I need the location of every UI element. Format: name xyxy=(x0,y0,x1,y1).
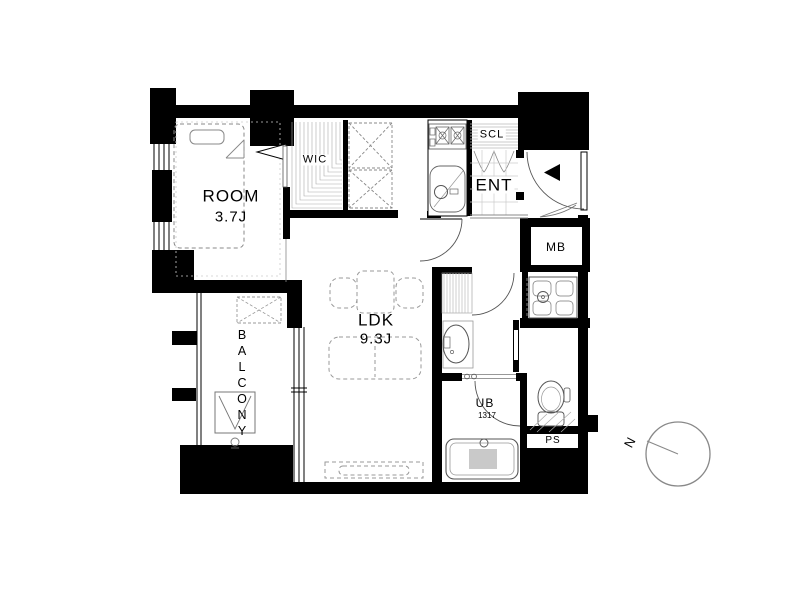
ps-label: PS xyxy=(545,436,560,446)
pillar-top-right xyxy=(518,92,589,150)
room-label: ROOM xyxy=(203,188,260,205)
basin-faucet xyxy=(444,337,450,348)
washbasin xyxy=(443,325,469,363)
washer-pan xyxy=(527,277,577,318)
dining-table xyxy=(357,271,394,313)
toilet-room xyxy=(530,381,575,432)
north-compass xyxy=(646,422,710,486)
wic-door xyxy=(257,144,287,282)
hall-strip-hatch xyxy=(444,273,468,313)
washer-pan-outline xyxy=(529,277,577,318)
ac-unit-x xyxy=(237,297,281,323)
balcony-label: BALCONY xyxy=(235,328,249,440)
basin-drain xyxy=(450,350,453,353)
wall-kitchen-east xyxy=(467,120,472,216)
pillar-top-middle xyxy=(250,90,294,146)
wall-wic-closet-south xyxy=(286,210,398,218)
door-jamb-bottom xyxy=(516,192,524,200)
ent-label: ENT xyxy=(474,177,515,194)
ub-size-label: 1317 xyxy=(478,412,496,420)
bathroom xyxy=(446,439,518,479)
toilet-control xyxy=(564,388,570,402)
bathtub-texture xyxy=(469,449,497,469)
wall-right-bump xyxy=(586,415,598,432)
balcony-railing xyxy=(197,293,201,447)
kitchen xyxy=(428,120,467,216)
wic-door-wedge xyxy=(257,144,286,160)
closet-x-upper xyxy=(349,123,392,168)
room-west-window-upper xyxy=(154,144,169,170)
ldk-balcony-window xyxy=(294,327,304,482)
toilet-bowl-inner xyxy=(542,387,561,411)
closet-x-lower xyxy=(349,170,392,208)
scl-label: SCL xyxy=(478,130,506,141)
bed-fold-corner xyxy=(226,140,244,158)
floor-plan-page: ROOM 3.7J WIC SCL ENT MB LDK 9.3J BALCON… xyxy=(0,0,800,600)
ent-step-edge xyxy=(470,215,528,218)
entrance-door-arc xyxy=(527,152,584,209)
wall-balcony-stub-2 xyxy=(172,388,196,401)
door-jamb-top xyxy=(516,150,524,158)
wall-room-south xyxy=(152,280,302,293)
floor-plan-drawing xyxy=(0,0,800,600)
entrance-direction-icon xyxy=(544,164,560,181)
washroom-door-arc xyxy=(472,273,514,315)
dining-chair-left xyxy=(330,278,357,308)
wic-door-panel xyxy=(283,146,287,187)
tv-board xyxy=(325,462,423,478)
entrance-door-leaf xyxy=(581,152,587,210)
ldk-door-arc xyxy=(420,219,462,261)
room-size-label: 3.7J xyxy=(215,210,247,225)
compass-needle xyxy=(647,441,678,454)
wall-balcony-stub-1 xyxy=(172,331,197,345)
dining-chair-right xyxy=(396,278,423,308)
toilet-door-opening xyxy=(514,330,518,360)
wall-wic-closet-divider xyxy=(343,120,348,210)
storage-closet xyxy=(349,123,392,208)
mb-door-swing xyxy=(540,203,577,217)
washroom xyxy=(443,321,473,368)
hall-strip xyxy=(442,273,472,313)
wall-left-mid xyxy=(152,170,172,222)
wic-label: WIC xyxy=(301,155,329,166)
ldk-furniture xyxy=(325,271,423,478)
mb-label: MB xyxy=(546,241,566,253)
closet-box-lower xyxy=(349,170,392,208)
room-west-window-lower xyxy=(154,222,169,252)
pillar-balcony xyxy=(287,280,302,328)
pillow xyxy=(190,130,224,144)
block-balcony-south xyxy=(180,445,293,493)
tv-board-inner xyxy=(339,466,409,475)
ldk-size-label: 9.3J xyxy=(360,332,392,347)
ldk-label: LDK xyxy=(358,312,394,329)
ub-label: UB xyxy=(476,397,495,409)
wall-top xyxy=(150,105,518,118)
